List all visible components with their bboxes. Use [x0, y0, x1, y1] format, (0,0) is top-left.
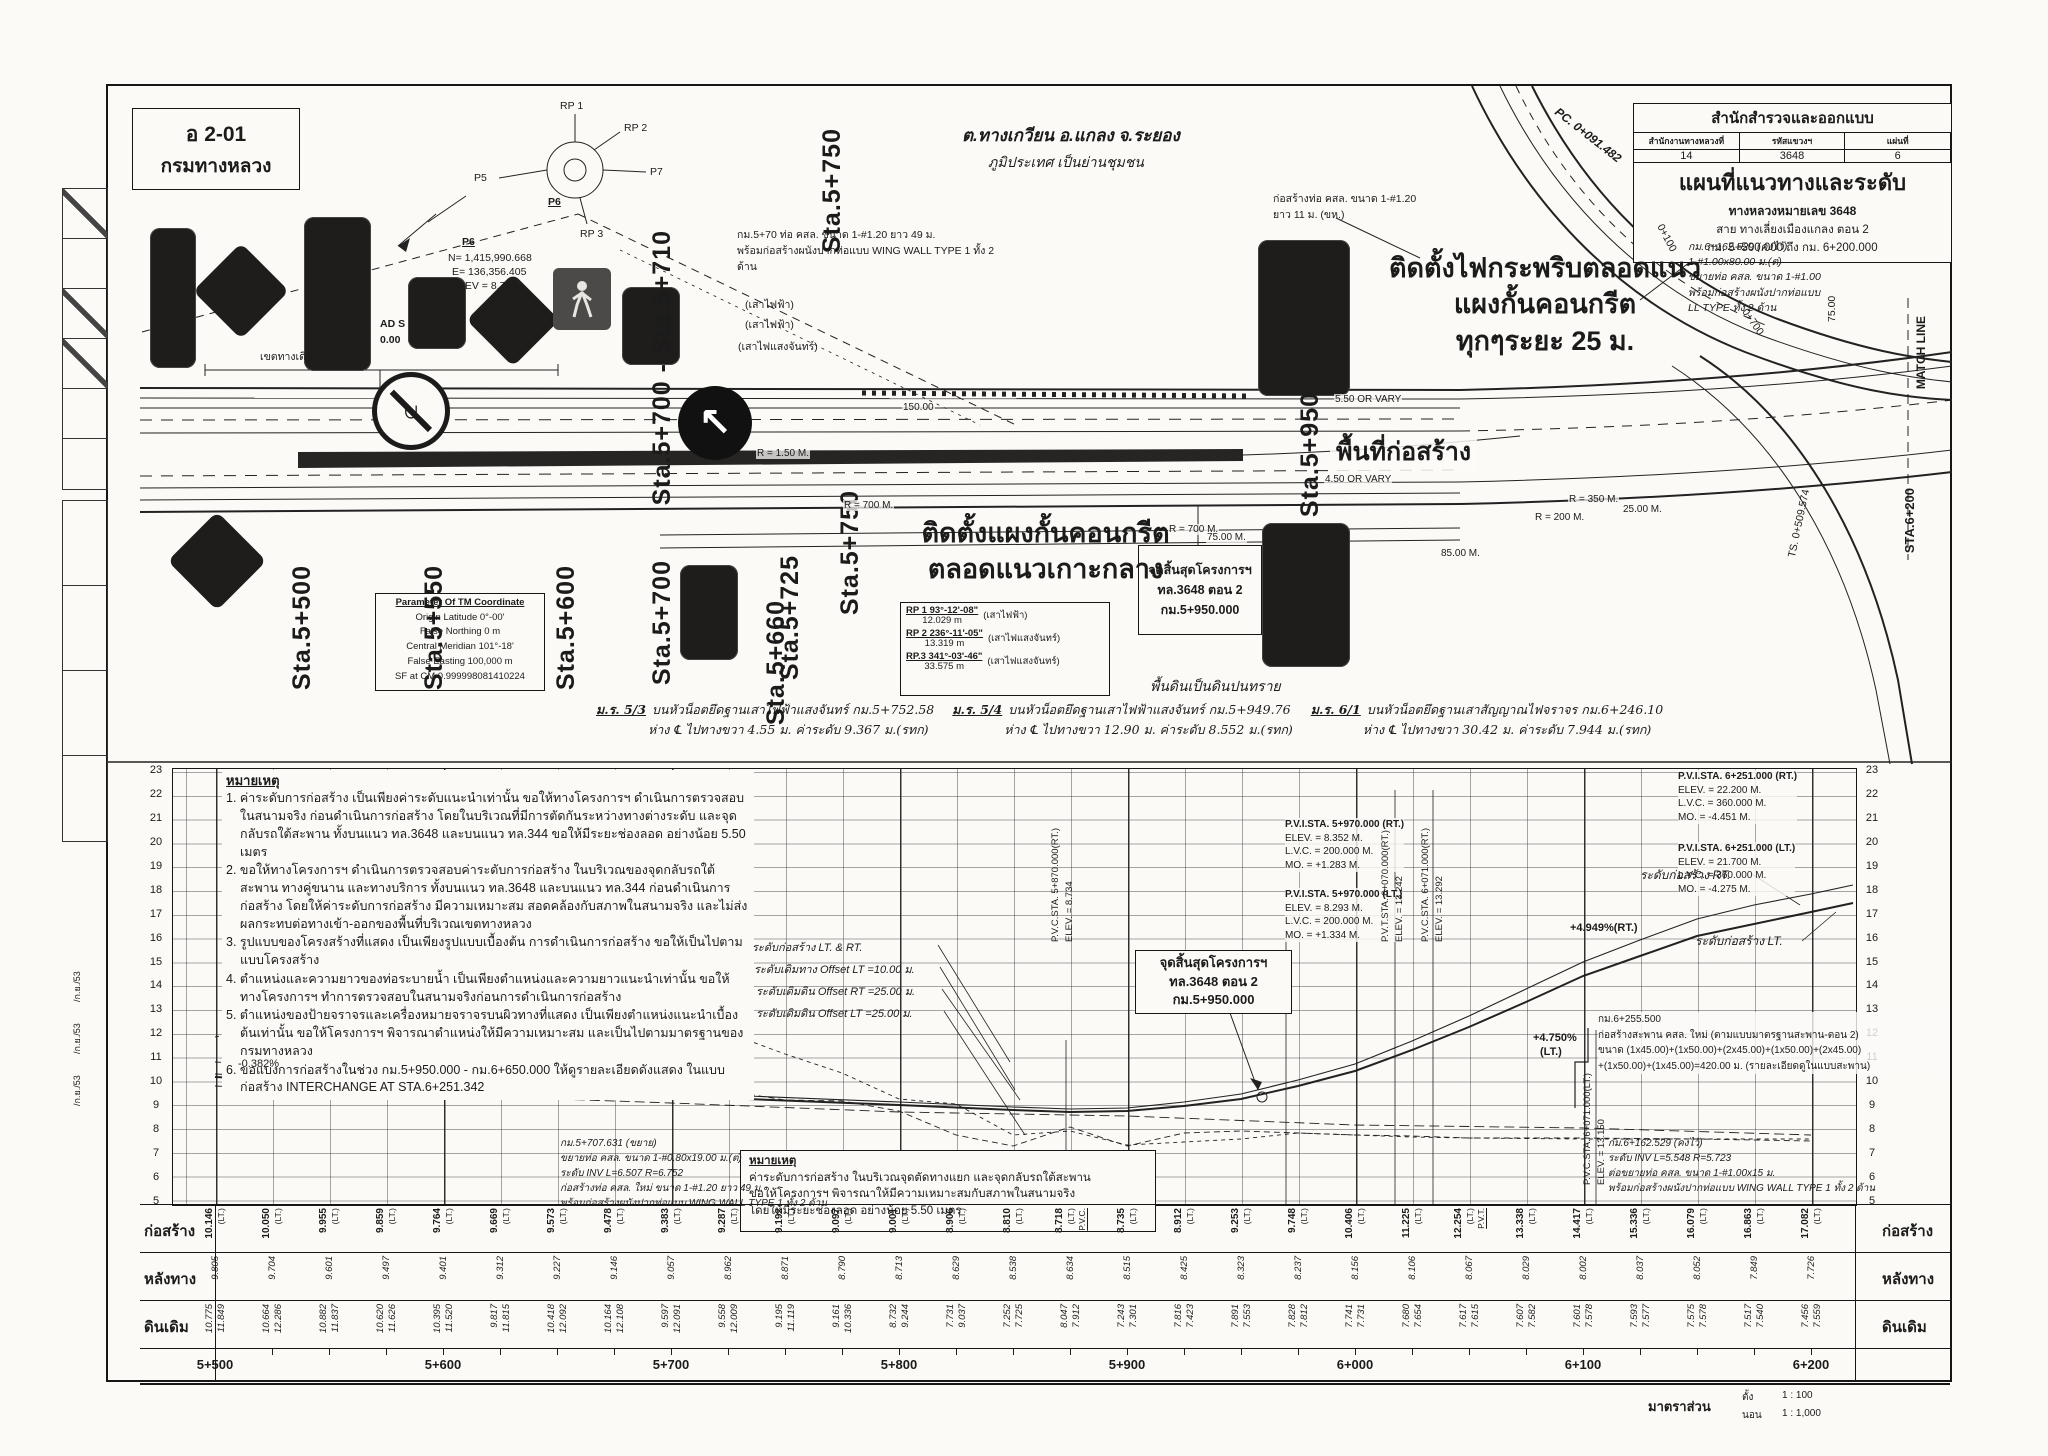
culvert-note-right: กม.6+162.529 (คงไว้)1-#1.00x80.00 ม.(ต่)… — [1688, 240, 1821, 316]
culvert-line: ขยายท่อ คสล. ขนาด 1-#0.80x19.00 ม.(ต่) — [560, 1151, 870, 1166]
construction-value: 9.859 — [375, 1208, 386, 1233]
dim-vary-bot: 4.50 OR VARY — [1324, 474, 1392, 485]
pv-station: P.V.C.STA. 6+071.000(RT.) — [1420, 792, 1431, 942]
ground-value-left: 9.161 — [831, 1304, 842, 1328]
rp-row: RP 1 93°-12'-08" 12.029 m (เสาไฟฟ้า) — [906, 606, 1104, 627]
slope-label-rt: +4.949%(RT.) — [1570, 922, 1638, 934]
dim-r350: R = 350 M. — [1568, 494, 1619, 505]
compass-rp2: RP 2 — [624, 122, 647, 134]
table-divider — [1855, 1204, 1856, 1382]
note-item: 5. ตำแหน่งของป้ายจราจรและเครื่องหมายจราจ… — [226, 1007, 750, 1060]
side-tag: (LT.) — [216, 1208, 226, 1224]
construction-level-cell: 9.859(LT.) — [358, 1205, 415, 1253]
ground-value-left: 7.517 — [1743, 1304, 1754, 1328]
slope-label-lt-side: (LT.) — [1540, 1046, 1562, 1058]
construction-level-cell: 9.748(LT.) — [1270, 1205, 1327, 1253]
traffic-sign-board — [680, 565, 738, 660]
construction-value: 8.718 — [1054, 1208, 1065, 1233]
side-tag: (LT.) — [1584, 1208, 1594, 1224]
row-label-left: ก่อสร้าง — [144, 1219, 195, 1243]
side-tag: (LT.) — [1755, 1208, 1765, 1224]
end-box-line: ทล.3648 ตอน 2 — [1136, 973, 1291, 992]
note-line: ติดตั้งแผงกั้นคอนกรีต — [888, 515, 1203, 551]
construction-level-cell: 9.253(LT.) — [1213, 1205, 1270, 1253]
axis-station-label: 6+200 — [1697, 1357, 1925, 1372]
side-tag: (LT.) — [444, 1208, 454, 1224]
construction-level-cell: 8.735(LT.) — [1099, 1205, 1156, 1253]
bridge-note-line: ขนาด (1x45.00)+(1x50.00)+(2x45.00)+(1x50… — [1598, 1043, 1948, 1059]
bureau-name: สำนักสำรวจและออกแบบ — [1634, 104, 1951, 133]
note-line: ตลอดแนวเกาะกลาง — [888, 551, 1203, 587]
construction-value: 9.955 — [318, 1208, 329, 1233]
road-level-cell: 8.052 — [1669, 1253, 1726, 1301]
ground-level-cell: 8.7329.244 — [871, 1301, 928, 1349]
ground-value-right: 7.577 — [1641, 1304, 1652, 1328]
elevation-tick: 15 — [1858, 956, 1886, 968]
sheet-code-box: อ 2-01 กรมทางหลวง — [132, 108, 300, 190]
ground-value-right: 7.812 — [1299, 1304, 1310, 1328]
construction-value: 13.338 — [1515, 1208, 1526, 1239]
construction-level-cell: 10.050(LT.) — [244, 1205, 301, 1253]
ground-value-right: 7.912 — [1071, 1304, 1082, 1328]
construction-value: 16.863 — [1743, 1208, 1754, 1239]
traffic-sign-board — [1258, 240, 1350, 396]
construction-value: 9.573 — [546, 1208, 557, 1233]
note-line: แผงกั้นคอนกรีต — [1385, 286, 1705, 322]
culvert-line: กม.5+70 ท่อ คสล. ขนาด 1-#1.20 ยาว 49 ม. — [737, 228, 997, 244]
elevation-tick: 21 — [1858, 812, 1886, 824]
note-item: 3. รูปแบบของโครงสร้างที่แสดง เป็นเพียงรู… — [226, 934, 750, 970]
ground-level-cell: 7.4567.559 — [1783, 1301, 1840, 1349]
pvt-vertical-label: P.V.T.STA. 6+070.000(RT.) ELEV. = 13.242 — [1380, 792, 1405, 945]
elevation-tick: 10 — [1858, 1075, 1886, 1087]
road-level-cell: 8.156 — [1327, 1253, 1384, 1301]
construction-level-cell: 9.097(LT.) — [814, 1205, 871, 1253]
pvc-vertical-label: P.V.C.STA. 6+071.000(RT.) ELEV. = 13.292 — [1420, 792, 1445, 945]
side-tag: (LT.) — [1066, 1208, 1076, 1224]
elevation-tick: 7 — [142, 1147, 170, 1159]
elevation-tick: 12 — [142, 1027, 170, 1039]
rp-distance: 13.319 m — [906, 639, 983, 649]
tm-row: False Northing 0 m — [376, 625, 544, 640]
road-value: 8.106 — [1407, 1256, 1418, 1280]
ground-level-cell: 9.16110.336 — [814, 1301, 871, 1349]
construction-value: 8.735 — [1116, 1208, 1127, 1233]
ground-value-right: 7.582 — [1527, 1304, 1538, 1328]
scale-label: มาตราส่วน — [1648, 1396, 1711, 1417]
road-value: 8.713 — [894, 1256, 905, 1280]
dim-r200: R = 200 M. — [1534, 512, 1585, 523]
elevation-tick: 6 — [142, 1171, 170, 1183]
pv-station: P.V.C.STA. 6+071.000(LT.) — [1582, 1035, 1593, 1185]
ground-value-right: 12.108 — [615, 1304, 626, 1333]
reference-point-table: RP 1 93°-12'-08" 12.029 m (เสาไฟฟ้า) RP … — [900, 602, 1110, 696]
road-value: 9.057 — [666, 1256, 677, 1280]
elevation-tick: 22 — [1858, 788, 1886, 800]
road-level-cell: 8.106 — [1384, 1253, 1441, 1301]
road-level-cell: 8.634 — [1042, 1253, 1099, 1301]
axis-station-label: 5+900 — [1013, 1357, 1241, 1372]
road-value: 8.790 — [837, 1256, 848, 1280]
construction-value: 9.287 — [717, 1208, 728, 1233]
culvert-line: ก่อสร้างท่อ คสล. ใหม่ ขนาด 1-#1.20 ยาว 4… — [560, 1181, 870, 1196]
road-level-cell: 8.871 — [757, 1253, 814, 1301]
construction-level-cell: 11.225(LT.) — [1384, 1205, 1441, 1253]
ground-level-cell: 9.55812.009 — [700, 1301, 757, 1349]
station-ticks — [187, 1349, 1840, 1355]
ground-level-cell: 9.59712.091 — [643, 1301, 700, 1349]
ground-value-left: 10.418 — [546, 1304, 557, 1333]
table-row-construction: ก่อสร้าง ก่อสร้าง 10.146(LT.)10.050(LT.)… — [140, 1204, 1950, 1253]
ground-value-left: 7.575 — [1686, 1304, 1697, 1328]
ground-value-right: 7.654 — [1413, 1304, 1424, 1328]
dim-85m: 85.00 M. — [1440, 548, 1481, 559]
ground-value-left: 8.732 — [888, 1304, 899, 1328]
construction-value: 12.254 — [1453, 1208, 1464, 1239]
note-item: 6. ขอแบ่งการก่อสร้างในช่วง กม.5+950.000 … — [226, 1062, 750, 1098]
ground-level-cell: 10.62011.626 — [358, 1301, 415, 1349]
route-name: สาย ทางเลี่ยงเมืองแกลง ตอน 2 — [1634, 221, 1951, 239]
column-value: 3648 — [1740, 150, 1845, 162]
column-label: สำนักงานทางหลวงที่ — [1634, 133, 1739, 150]
station-label: Sta.5+950 — [1296, 392, 1325, 517]
road-level-cell: 9.057 — [643, 1253, 700, 1301]
title-block-columns: สำนักงานทางหลวงที่ 14 รหัสแขวงฯ 3648 แผ่… — [1634, 133, 1951, 163]
elevation-tick: 9 — [142, 1099, 170, 1111]
culvert-line: 1-#1.00x80.00 ม.(ต่) — [1688, 255, 1821, 270]
table-row-road: หลังทาง หลังทาง 9.8059.7049.6019.4979.40… — [140, 1252, 1950, 1301]
road-level-cell: 8.002 — [1555, 1253, 1612, 1301]
ground-value-right: 7.578 — [1698, 1304, 1709, 1328]
road-value: 8.515 — [1122, 1256, 1133, 1280]
benchmark-detail: ห่าง ℄ ไปทางขวา 12.90 ม. ค่าระดับ 8.552 … — [952, 720, 1293, 740]
construction-level-cell: 8.718(LT.)P.V.C. — [1042, 1205, 1099, 1253]
construction-value: 9.192 — [774, 1208, 785, 1233]
construction-value: 8.810 — [1002, 1208, 1013, 1233]
road-value: 8.425 — [1179, 1256, 1190, 1280]
ground-level-cell: 7.6017.578 — [1555, 1301, 1612, 1349]
road-level-cell: 8.323 — [1213, 1253, 1270, 1301]
pvi-station: P.V.I.STA. 6+251.000 (RT.) — [1678, 770, 1797, 784]
ground-value-left: 10.664 — [261, 1304, 272, 1333]
side-tag: (LT.) — [900, 1208, 910, 1224]
elevation-tick: 9 — [1858, 1099, 1886, 1111]
construction-value: 10.146 — [204, 1208, 215, 1239]
leader-label: ระดับเดิมดิน Offset LT =25.00 ม. — [756, 1004, 913, 1022]
culvert-line: กม.6+162.529 (คงไว้) — [1688, 240, 1821, 255]
ground-value-right: 11.849 — [216, 1304, 227, 1332]
road-value: 8.029 — [1521, 1256, 1532, 1280]
side-tag: (LT.) — [1356, 1208, 1366, 1224]
rp-row: RP.3 341°-03'-46" 33.575 m (เสาไฟแสงจันท… — [906, 652, 1104, 673]
construction-level-cell: 9.955(LT.) — [301, 1205, 358, 1253]
axis-station-label: 5+600 — [329, 1357, 557, 1372]
ground-value-left: 7.607 — [1515, 1304, 1526, 1328]
compass-p5: P5 — [474, 172, 487, 184]
scale-horizontal-value: 1 : 1,000 — [1782, 1408, 1821, 1419]
ground-value-left: 7.891 — [1230, 1304, 1241, 1328]
road-value: 8.037 — [1635, 1256, 1646, 1280]
culvert-line: ระดับ INV L=6.507 R=6.752 — [560, 1166, 870, 1181]
elevation-tick: 23 — [1858, 764, 1886, 776]
elevation-tick: 8 — [1858, 1123, 1886, 1135]
ground-level-cell: 7.2527.725 — [985, 1301, 1042, 1349]
ground-value-left: 7.456 — [1800, 1304, 1811, 1328]
ground-level-cell: 7.6177.615 — [1441, 1301, 1498, 1349]
benchmark-desc: บนหัวน็อตยึดฐานเสาไฟฟ้าแสงจันทร์ กม.5+94… — [1008, 702, 1290, 717]
road-level-cell: 9.227 — [529, 1253, 586, 1301]
highway-number: ทางหลวงหมายเลข 3648 — [1634, 202, 1951, 221]
rp-reference: (เสาไฟแสงจันทร์) — [987, 657, 1059, 667]
title-block-column: รหัสแขวงฯ 3648 — [1740, 133, 1846, 162]
leader-label: ระดับเดิมดิน Offset RT =25.00 ม. — [756, 982, 915, 1000]
pv-station: P.V.T.STA. 6+070.000(RT.) — [1380, 792, 1391, 942]
grade-line-label-rt: ระดับก่อสร้าง RT. — [1640, 866, 1731, 885]
ground-value-right: 12.286 — [273, 1304, 284, 1333]
date-stamp: /ก.ย./53 — [70, 1054, 84, 1106]
culvert-line: กม.5+707.631 (ขยาย) — [560, 1136, 870, 1151]
road-level-cell: 8.067 — [1441, 1253, 1498, 1301]
benchmark-desc: บนหัวน็อตยึดฐานเสาสัญญาณไฟจราจร กม.6+246… — [1367, 702, 1663, 717]
elevation-tick: 22 — [142, 788, 170, 800]
ground-level-cell: 10.16412.108 — [586, 1301, 643, 1349]
road-value: 8.962 — [723, 1256, 734, 1280]
leader-label: ระดับเดิมทาง Offset LT =10.00 ม. — [754, 960, 915, 978]
road-value: 8.156 — [1350, 1256, 1361, 1280]
elevation-tick: 18 — [142, 884, 170, 896]
compass-rp1: RP 1 — [560, 100, 583, 112]
ground-level-cell: 7.8917.553 — [1213, 1301, 1270, 1349]
elevation-tick: 17 — [142, 908, 170, 920]
road-value: 9.704 — [267, 1256, 278, 1280]
benchmark-desc: บนหัวน็อตยึดฐานเสาไฟฟ้าแสงจันทร์ กม.5+75… — [652, 702, 934, 717]
ground-level-cell: 7.5177.540 — [1726, 1301, 1783, 1349]
road-level-cell: 7.726 — [1783, 1253, 1840, 1301]
benchmark-block: ม.ร. 5/3บนหัวน็อตยึดฐานเสาไฟฟ้าแสงจันทร์… — [596, 700, 934, 740]
ground-value-right: 7.725 — [1014, 1304, 1025, 1328]
survey-elevation: ELEV = 8.763 — [452, 280, 517, 292]
ground-value-left: 10.882 — [318, 1304, 329, 1333]
culvert-line: พร้อมก่อสร้างผนังปากท่อแบบ WING WALL TYP… — [560, 1196, 870, 1211]
road-value: 7.726 — [1806, 1256, 1817, 1280]
sheet-code: อ 2-01 — [133, 118, 299, 151]
elevation-tick: 11 — [142, 1051, 170, 1063]
ground-value-left: 7.828 — [1287, 1304, 1298, 1328]
construction-value: 9.669 — [489, 1208, 500, 1233]
construction-level-cell: 13.338(LT.) — [1498, 1205, 1555, 1253]
traffic-sign-board — [1262, 523, 1350, 667]
side-tag: (LT.) — [1812, 1208, 1822, 1224]
scale-vertical-label: ตั้ง — [1742, 1390, 1753, 1405]
road-level-cell: 8.029 — [1498, 1253, 1555, 1301]
benchmark-detail: ห่าง ℄ ไปทางขวา 30.42 ม. ค่าระดับ 7.944 … — [1311, 720, 1663, 740]
pole-label: (เสาไฟแสงจันทร์) — [738, 338, 818, 355]
date-stamps: /ก.ย./53/ก.ย./53/ก.ย./53 — [70, 950, 84, 1106]
bridge-note: กม.6+255.500ก่อสร้างสะพาน คสล. ใหม่ (ตาม… — [1598, 1012, 1948, 1074]
traffic-sign-board — [150, 228, 196, 368]
ground-value-left: 9.195 — [774, 1304, 785, 1328]
tm-row: SF at CM 0.999998081410224 — [376, 670, 544, 685]
construction-level-cell: 14.417(LT.) — [1555, 1205, 1612, 1253]
elevation-tick: 14 — [142, 979, 170, 991]
row-label-left: หลังทาง — [144, 1267, 196, 1291]
tm-title: Parameter Of TM Coordinate — [376, 596, 544, 611]
no-uturn-sign: ∩ — [372, 372, 450, 450]
survey-northing: N= 1,415,990.668 — [448, 252, 532, 264]
signature-strip — [62, 500, 108, 842]
benchmark-block: ม.ร. 5/4บนหัวน็อตยึดฐานเสาไฟฟ้าแสงจันทร์… — [952, 700, 1293, 740]
culvert-note-top: กม.5+70 ท่อ คสล. ขนาด 1-#1.20 ยาว 49 ม.พ… — [737, 228, 997, 275]
ground-value-right: 7.615 — [1470, 1304, 1481, 1328]
column-label: รหัสแขวงฯ — [1740, 133, 1845, 150]
ground-value-left: 7.816 — [1173, 1304, 1184, 1328]
tm-row: Central Meridian 101°-18' — [376, 640, 544, 655]
tm-row: False Easting 100,000 m — [376, 655, 544, 670]
dim-75: 75.00 — [1826, 296, 1838, 322]
construction-value: 9.764 — [432, 1208, 443, 1233]
side-tag: (LT.) — [1641, 1208, 1651, 1224]
general-notes: หมายเหตุ 1. ค่าระดับการก่อสร้าง เป็นเพีย… — [222, 770, 754, 1100]
pv-elev: ELEV. = 13.242 — [1394, 792, 1405, 942]
survey-easting: E= 136,356.405 — [452, 266, 526, 278]
construction-level-cell: 16.863(LT.) — [1726, 1205, 1783, 1253]
ground-value-right: 11.119 — [786, 1304, 797, 1332]
pvi-station: P.V.I.STA. 6+251.000 (LT.) — [1678, 842, 1795, 856]
arrow-up-left-icon: ↖ — [698, 403, 732, 443]
title-block-column: สำนักงานทางหลวงที่ 14 — [1634, 133, 1740, 162]
road-level-cell: 8.790 — [814, 1253, 871, 1301]
match-line-label: MATCH LINE — [1914, 316, 1928, 389]
construction-level-cell: 15.336(LT.) — [1612, 1205, 1669, 1253]
ground-value-left: 9.817 — [489, 1304, 500, 1328]
benchmark-row: ม.ร. 5/3บนหัวน็อตยึดฐานเสาไฟฟ้าแสงจันทร์… — [596, 700, 1986, 740]
scale-vertical-value: 1 : 100 — [1782, 1390, 1813, 1401]
construction-value: 8.906 — [945, 1208, 956, 1233]
elevation-tick: 20 — [1858, 836, 1886, 848]
dim-vary-top: 5.50 OR VARY — [1334, 394, 1402, 405]
station-label: Sta.5+600 — [552, 565, 581, 690]
ground-value-left: 9.558 — [717, 1304, 728, 1328]
road-level-cell: 8.538 — [985, 1253, 1042, 1301]
construction-level-cell: 9.764(LT.) — [415, 1205, 472, 1253]
side-tag: (LT.) — [1465, 1208, 1475, 1224]
ground-level-cell: 9.19511.119 — [757, 1301, 814, 1349]
location-name: ต.ทางเกวียน อ.แกลง จ.ระยอง — [962, 122, 1180, 149]
construction-level-cell: 12.254(LT.)P.V.T. — [1441, 1205, 1498, 1253]
elevation-tick: 8 — [142, 1123, 170, 1135]
ground-value-right: 10.336 — [843, 1304, 854, 1333]
date-stamp: /ก.ย./53 — [70, 950, 84, 1002]
construction-value: 10.050 — [261, 1208, 272, 1239]
construction-level-cell: 9.669(LT.) — [472, 1205, 529, 1253]
row-label-right: หลังทาง — [1882, 1267, 1934, 1291]
station-label: Sta.5+550 — [420, 565, 449, 690]
construction-area-label: พื้นที่ก่อสร้าง — [1330, 432, 1477, 472]
dim-75m: 75.00 M. — [1206, 532, 1247, 543]
ground-value-right: 7.553 — [1242, 1304, 1253, 1328]
median-barrier-note: ติดตั้งแผงกั้นคอนกรีตตลอดแนวเกาะกลาง — [888, 515, 1203, 588]
construction-value: 9.383 — [660, 1208, 671, 1233]
construction-level-cell: 17.082(LT.) — [1783, 1205, 1840, 1253]
bridge-note-line: +(1x50.00)+(1x45.00)=420.00 ม. (รายละเอี… — [1598, 1059, 1948, 1075]
ground-value-left: 7.741 — [1344, 1304, 1355, 1328]
axis-station-label: 5+800 — [785, 1357, 1013, 1372]
benchmark-block: ม.ร. 6/1บนหัวน็อตยึดฐานเสาสัญญาณไฟจราจร … — [1311, 700, 1663, 740]
end-of-project-callout: จุดสิ้นสุดโครงการฯทล.3648 ตอน 2กม.5+950.… — [1135, 950, 1292, 1014]
ground-value-left: 7.243 — [1116, 1304, 1127, 1328]
traffic-sign-board — [304, 217, 371, 371]
benchmark-detail: ห่าง ℄ ไปทางขวา 4.55 ม. ค่าระดับ 9.367 ม… — [596, 720, 934, 740]
station-label: STA.6+200 — [1902, 488, 1917, 553]
pvi-lvc: L.V.C. = 360.000 M. — [1678, 797, 1797, 811]
road-value: 8.634 — [1065, 1256, 1076, 1280]
culvert-note-profile-right: กม.6+162.529 (คงไว้)ระดับ INV L=5.548 R=… — [1608, 1136, 1948, 1196]
side-tag: (LT.) — [1698, 1208, 1708, 1224]
pedestrian-sign — [553, 268, 611, 330]
end-box-line: จุดสิ้นสุดโครงการฯ — [1136, 954, 1291, 973]
ground-value-left: 7.680 — [1401, 1304, 1412, 1328]
flashing-light-note: ติดตั้งไฟกระพริบตลอดแนวแผงกั้นคอนกรีตทุก… — [1385, 250, 1705, 359]
station-label: Sta.5+700 — [648, 560, 677, 685]
road-level-cell: 9.601 — [301, 1253, 358, 1301]
construction-value: 16.079 — [1686, 1208, 1697, 1239]
road-level-cell: 8.515 — [1099, 1253, 1156, 1301]
rp-distance: 12.029 m — [906, 616, 978, 626]
ground-value-left: 7.601 — [1572, 1304, 1583, 1328]
dim-r150: R = 1.50 M. — [756, 448, 810, 459]
rp-distance: 33.575 m — [906, 662, 982, 672]
ground-value-right: 7.578 — [1584, 1304, 1595, 1328]
note-item: 2. ขอให้ทางโครงการฯ ดำเนินการตรวจสอบค่าร… — [226, 862, 750, 933]
ground-level-cell: 10.41812.092 — [529, 1301, 586, 1349]
title-block: สำนักสำรวจและออกแบบ สำนักงานทางหลวงที่ 1… — [1633, 103, 1952, 263]
road-value: 8.871 — [780, 1256, 791, 1280]
road-value: 8.629 — [951, 1256, 962, 1280]
slope-label-left: -0.382% — [238, 1058, 279, 1070]
station-label: Sta.5+725 — [776, 555, 805, 680]
road-value: 9.227 — [552, 1256, 563, 1280]
ground-level-cell: 7.7417.731 — [1327, 1301, 1384, 1349]
side-tag: (LT.) — [1527, 1208, 1537, 1224]
road-value: 9.312 — [495, 1256, 506, 1280]
ground-value-right: 11.837 — [330, 1304, 341, 1332]
benchmark-id: ม.ร. 5/4 — [952, 702, 1002, 717]
ad-label: AD S — [380, 318, 405, 330]
row-label-right: ก่อสร้าง — [1882, 1219, 1933, 1243]
elevation-tick: 20 — [142, 836, 170, 848]
road-level-cell: 7.849 — [1726, 1253, 1783, 1301]
construction-value: 11.225 — [1401, 1208, 1412, 1238]
dim-25m: 25.00 M. — [1622, 504, 1663, 515]
side-tag: (LT.) — [1242, 1208, 1252, 1224]
road-value: 8.002 — [1578, 1256, 1589, 1280]
dim-r700: R = 700 M. — [843, 500, 894, 511]
road-value: 8.052 — [1692, 1256, 1703, 1280]
ground-value-right: 7.423 — [1185, 1304, 1196, 1328]
road-value: 9.401 — [438, 1256, 449, 1280]
culvert-line: ก่อสร้างท่อ คสล. ขนาด 1-#1.20 — [1273, 192, 1416, 208]
ad-value: 0.00 — [380, 334, 400, 346]
road-value: 8.323 — [1236, 1256, 1247, 1280]
construction-value: 10.406 — [1344, 1208, 1355, 1239]
culvert-note-profile-left: กม.5+707.631 (ขยาย)ขยายท่อ คสล. ขนาด 1-#… — [560, 1136, 870, 1211]
construction-level-cell: 8.912(LT.) — [1156, 1205, 1213, 1253]
side-tag: (LT.) — [330, 1208, 340, 1224]
pv-elev: ELEV. = 13.292 — [1434, 792, 1445, 942]
pvi-mo: MO. = -4.451 M. — [1678, 811, 1797, 825]
column-value: 6 — [1845, 150, 1950, 162]
road-level-cell: 8.629 — [928, 1253, 985, 1301]
